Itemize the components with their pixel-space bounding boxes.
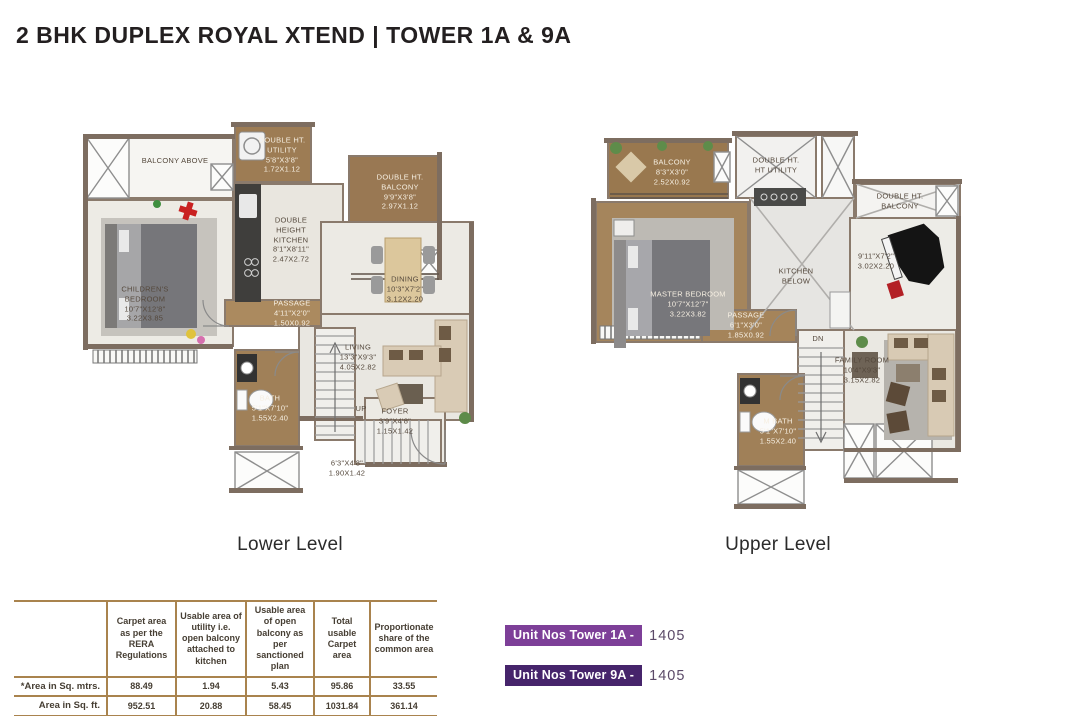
- cell-value: 33.55: [370, 677, 437, 697]
- unit-row-tower-1a: Unit Nos Tower 1A - 1405: [505, 625, 685, 646]
- unit-badge-tower-9a: Unit Nos Tower 9A -: [505, 665, 642, 686]
- lower-plan-drawing: [83, 122, 478, 507]
- cell-value: 952.51: [107, 696, 176, 716]
- table-header-total: Total usable Carpet area: [314, 601, 370, 677]
- table-header-carpet: Carpet area as per the RERA Regulations: [107, 601, 176, 677]
- area-table: Carpet area as per the RERA Regulations …: [14, 600, 437, 716]
- table-row-sq-ft: Area in Sq. ft. 952.51 20.88 58.45 1031.…: [14, 696, 437, 716]
- cell-value: 5.43: [246, 677, 314, 697]
- table-header-utility: Usable area of utility i.e. open balcony…: [176, 601, 246, 677]
- cell-value: 20.88: [176, 696, 246, 716]
- kitchen-counter: [235, 184, 261, 302]
- table-header-row: Carpet area as per the RERA Regulations …: [14, 601, 437, 677]
- unit-number-tower-1a: 1405: [649, 628, 685, 644]
- table-header-blank: [14, 601, 107, 677]
- bed: [101, 218, 217, 336]
- cell-value: 361.14: [370, 696, 437, 716]
- window-railing: [93, 350, 197, 363]
- floor-plan-sheet: 2 BHK DUPLEX ROYAL XTEND | TOWER 1A & 9A: [0, 0, 1080, 716]
- row-label-sq-mtrs: *Area in Sq. mtrs.: [14, 677, 107, 697]
- washing-machine: [239, 132, 265, 160]
- cell-value: 58.45: [246, 696, 314, 716]
- cell-value: 1031.84: [314, 696, 370, 716]
- cell-value: 95.86: [314, 677, 370, 697]
- table-row-sq-mtrs: *Area in Sq. mtrs. 88.49 1.94 5.43 95.86…: [14, 677, 437, 697]
- cell-value: 1.94: [176, 677, 246, 697]
- cell-value: 88.49: [107, 677, 176, 697]
- lower-level-plan: BALCONY ABOVE DOUBLE HT. UTILITY5'8"X3'8…: [83, 122, 478, 507]
- table-header-proportionate: Proportionate share of the common area: [370, 601, 437, 677]
- upper-level-plan: BALCONY8'3"X3'0"2.52X0.92 DOUBLE HT. HT …: [590, 128, 1010, 518]
- lower-level-caption: Lower Level: [180, 534, 400, 556]
- row-label-sq-ft: Area in Sq. ft.: [14, 696, 107, 716]
- unit-badge-tower-1a: Unit Nos Tower 1A -: [505, 625, 642, 646]
- unit-row-tower-9a: Unit Nos Tower 9A - 1405: [505, 665, 685, 686]
- upper-level-caption: Upper Level: [668, 534, 888, 556]
- table-header-open-balcony: Usable area of open balcony as per sanct…: [246, 601, 314, 677]
- unit-number-tower-9a: 1405: [649, 668, 685, 684]
- upper-plan-drawing: [590, 128, 1010, 518]
- page-title: 2 BHK DUPLEX ROYAL XTEND | TOWER 1A & 9A: [16, 22, 572, 49]
